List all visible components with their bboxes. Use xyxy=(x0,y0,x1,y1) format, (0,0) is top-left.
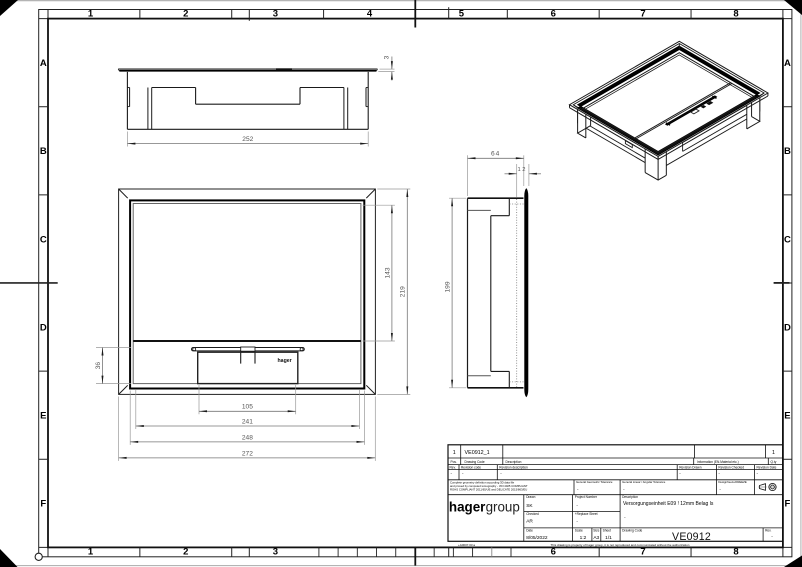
svg-text:105: 105 xyxy=(242,404,253,411)
svg-text:VE0912: VE0912 xyxy=(672,531,711,543)
svg-text:219: 219 xyxy=(400,286,407,297)
svg-text:D: D xyxy=(40,322,47,333)
svg-text:Checked: Checked xyxy=(526,512,539,516)
svg-text:6: 6 xyxy=(551,547,556,558)
svg-text:B: B xyxy=(40,146,47,157)
svg-text:Q.ty: Q.ty xyxy=(771,460,777,464)
svg-text:General Linear / Angular Toler: General Linear / Angular Tolerance xyxy=(622,480,666,484)
svg-text:1: 1 xyxy=(453,450,456,456)
svg-text:Rev.: Rev. xyxy=(765,528,771,532)
svg-text:8/05/2022: 8/05/2022 xyxy=(526,535,548,541)
svg-text:Designfreeze/FREEZE: Designfreeze/FREEZE xyxy=(718,480,746,484)
svg-text:199: 199 xyxy=(445,281,452,292)
svg-text:hagergroup: hagergroup xyxy=(449,500,520,515)
svg-text:8: 8 xyxy=(733,9,738,20)
svg-text:5: 5 xyxy=(459,9,465,20)
svg-text:A: A xyxy=(40,58,47,69)
svg-text:D: D xyxy=(784,322,791,333)
svg-text:F: F xyxy=(784,499,790,510)
svg-text:Drawing Code: Drawing Code xyxy=(465,460,485,464)
svg-text:Size: Size xyxy=(593,528,599,532)
svg-text:64: 64 xyxy=(491,151,500,158)
svg-text:272: 272 xyxy=(242,450,253,457)
svg-text:A3: A3 xyxy=(593,535,599,541)
svg-text:Pos.: Pos. xyxy=(451,460,457,464)
svg-text:Revision description: Revision description xyxy=(499,466,528,470)
svg-text:8: 8 xyxy=(733,547,738,558)
svg-text:This drawing is property of ha: This drawing is property of hager group,… xyxy=(551,543,690,547)
svg-text:Revision Date: Revision Date xyxy=(757,466,777,470)
svg-text:Scale: Scale xyxy=(575,528,583,532)
svg-text:7: 7 xyxy=(640,547,645,558)
svg-text:AR: AR xyxy=(526,519,533,525)
svg-text:Drawn: Drawn xyxy=(526,495,535,499)
svg-text:2: 2 xyxy=(183,9,188,20)
svg-text:VE0912_1: VE0912_1 xyxy=(465,450,490,456)
svg-text:Revision Drawn: Revision Drawn xyxy=(679,466,702,470)
svg-text:36: 36 xyxy=(95,362,102,370)
svg-text:C: C xyxy=(784,234,791,245)
svg-text:241: 241 xyxy=(242,418,253,425)
svg-text:1/1: 1/1 xyxy=(605,535,612,541)
svg-text:Information (EN.Material etc.: Information (EN.Material etc.) xyxy=(697,460,739,464)
svg-text:SK: SK xyxy=(526,503,533,509)
svg-text:Date: Date xyxy=(526,528,533,532)
svg-text:1:2: 1:2 xyxy=(580,535,587,541)
svg-text:Versorgungseinheit E09 ! 12mm: Versorgungseinheit E09 ! 12mm Belag ls xyxy=(623,501,714,507)
svg-text:1: 1 xyxy=(772,450,775,456)
svg-text:Drawing Code: Drawing Code xyxy=(622,528,642,532)
svg-text:E: E xyxy=(40,411,46,422)
svg-text:1 2: 1 2 xyxy=(517,167,525,173)
svg-text:2: 2 xyxy=(183,547,188,558)
svg-text:4: 4 xyxy=(367,9,373,20)
svg-text:1: 1 xyxy=(88,547,94,558)
svg-text:A: A xyxy=(784,58,791,69)
svg-text:Description: Description xyxy=(506,460,522,464)
svg-text:C: C xyxy=(40,234,47,245)
svg-text:1: 1 xyxy=(88,9,94,20)
svg-text:Rev.: Rev. xyxy=(450,466,456,470)
svg-text:hager: hager xyxy=(278,358,292,364)
svg-text:F: F xyxy=(40,499,46,510)
svg-text:Revision code: Revision code xyxy=(461,466,481,470)
svg-text:143: 143 xyxy=(384,267,391,278)
svg-text:Revision Checked: Revision Checked xyxy=(718,466,744,470)
svg-text:Project Number: Project Number xyxy=(575,495,598,499)
svg-text:252: 252 xyxy=(242,136,253,143)
svg-text:3: 3 xyxy=(273,547,278,558)
svg-text:7: 7 xyxy=(640,9,645,20)
svg-text:+Replace Sheet: +Replace Sheet xyxy=(575,512,598,516)
svg-text:General Geometric Tolerance: General Geometric Tolerance xyxy=(576,480,613,484)
svg-text:3: 3 xyxy=(273,9,278,20)
svg-text:+A0007.03.a: +A0007.03.a xyxy=(458,543,475,547)
svg-text:3: 3 xyxy=(384,55,391,59)
svg-text:ROHS COMPLIANT 2011/65/UE and: ROHS COMPLIANT 2011/65/UE and DELICATE 2… xyxy=(450,488,527,492)
svg-text:E: E xyxy=(784,411,790,422)
svg-text:6: 6 xyxy=(551,9,556,20)
svg-text:Description: Description xyxy=(622,495,638,499)
svg-text:Sheet: Sheet xyxy=(603,528,611,532)
svg-text:B: B xyxy=(784,146,791,157)
svg-text:248: 248 xyxy=(242,434,253,441)
